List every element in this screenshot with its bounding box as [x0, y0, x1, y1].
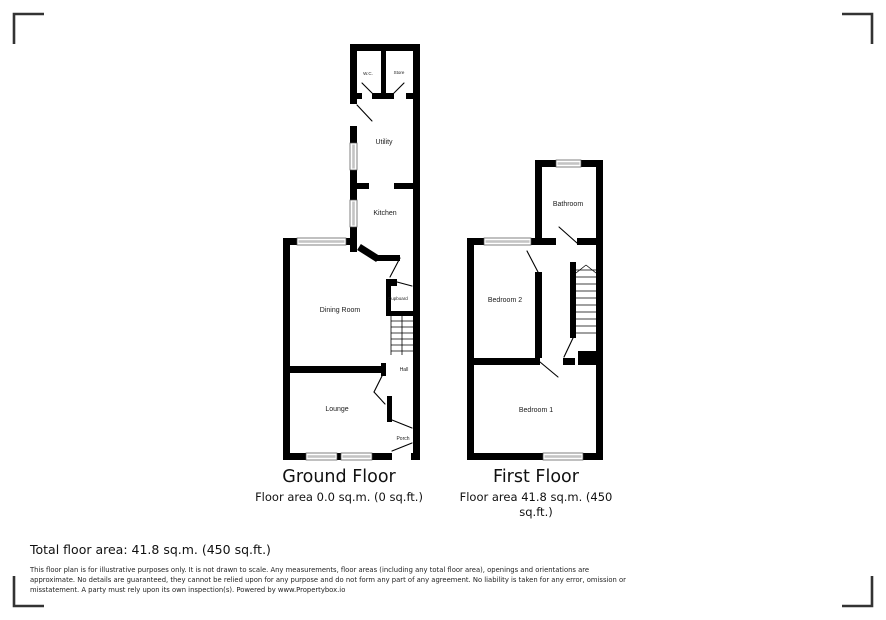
door-swing	[374, 392, 385, 404]
room-label-store: Store	[394, 70, 405, 75]
door-swing	[392, 420, 412, 428]
door-swing	[397, 282, 412, 286]
room-label-wc: W.C.	[363, 71, 373, 76]
window	[556, 160, 581, 167]
door-swing	[392, 443, 412, 451]
window	[341, 453, 372, 460]
room-label-bedroom-2: Bedroom 2	[488, 297, 522, 304]
ground-floor-title: Ground Floor	[254, 468, 424, 487]
ground-floor-staircase	[391, 316, 413, 355]
ground-floor-caption: Ground Floor Floor area 0.0 sq.m. (0 sq.…	[254, 468, 424, 505]
first-floor-plan: Bathroom Bedroom 2 Bedroom 1	[467, 160, 603, 460]
window	[306, 453, 337, 460]
corner-mark-top-right	[842, 14, 872, 44]
first-floor-title: First Floor	[448, 468, 624, 487]
door-swing	[362, 83, 372, 93]
total-floor-area: Total floor area: 41.8 sq.m. (450 sq.ft.…	[30, 542, 271, 557]
window	[350, 143, 357, 170]
door-swing	[540, 362, 558, 377]
window	[297, 238, 346, 245]
window	[543, 453, 583, 460]
room-label-dining-room: Dining Room	[320, 307, 361, 314]
corner-mark-top-left	[14, 14, 44, 44]
disclaimer-text: This floor plan is for illustrative purp…	[30, 566, 630, 596]
door-swing	[374, 374, 383, 392]
corner-mark-bottom-right	[842, 576, 872, 606]
door-swing	[357, 105, 372, 121]
room-label-hall: Hall	[400, 367, 409, 373]
door-swing	[564, 338, 573, 357]
ground-floor-plan: W.C. Store Utility Kitchen Dining Room C…	[283, 44, 420, 460]
door-swing	[394, 83, 404, 93]
first-floor-caption: First Floor Floor area 41.8 sq.m. (450 s…	[448, 468, 624, 520]
door-swing	[559, 227, 577, 243]
first-floor-staircase	[576, 265, 596, 333]
room-label-utility: Utility	[375, 139, 393, 146]
floorplan-page: { "ground_floor": { "title": "Ground Flo…	[0, 0, 886, 620]
first-floor-area: Floor area 41.8 sq.m. (450 sq.ft.)	[448, 490, 624, 520]
corner-marks	[14, 14, 872, 606]
first-floor-doors	[527, 227, 577, 377]
ground-floor-walls	[283, 44, 420, 460]
window	[350, 200, 357, 227]
ground-floor-area: Floor area 0.0 sq.m. (0 sq.ft.)	[254, 490, 424, 505]
room-label-porch: Porch	[396, 436, 409, 442]
window	[484, 238, 531, 245]
room-label-cupboard: Cupboard	[388, 296, 408, 301]
room-label-lounge: Lounge	[325, 406, 348, 413]
door-swing	[527, 251, 538, 272]
room-label-bathroom: Bathroom	[553, 201, 584, 208]
room-label-kitchen: Kitchen	[373, 210, 396, 217]
floorplan-canvas: W.C. Store Utility Kitchen Dining Room C…	[0, 0, 886, 620]
room-label-bedroom-1: Bedroom 1	[519, 407, 553, 414]
